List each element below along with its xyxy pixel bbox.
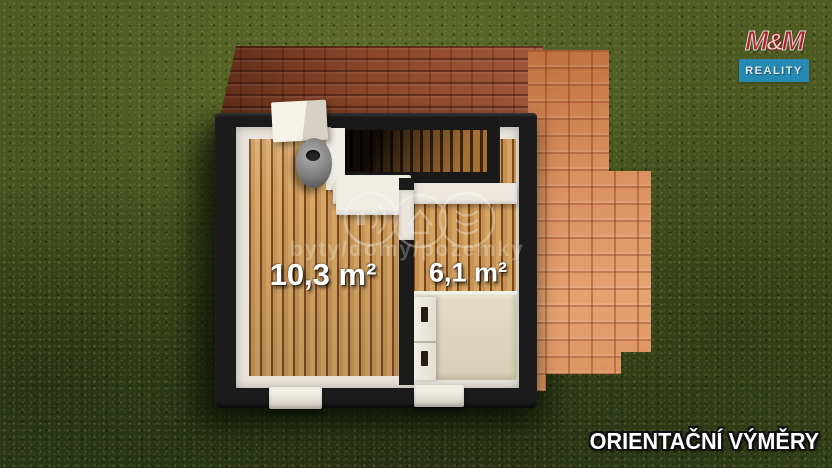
- roof-tiles-upper: [219, 46, 543, 122]
- stove-top-view: [296, 138, 332, 188]
- floorplan-render: 10,3 m² 6,1 m² byty/domy/pozemky M&M REA…: [0, 0, 832, 468]
- agency-logo: M&M REALITY: [739, 26, 809, 82]
- cabinet-handle: [421, 351, 428, 366]
- logo-ampersand: &: [766, 29, 781, 56]
- chimney-vent: [271, 100, 328, 143]
- cabinet-seam: [414, 341, 436, 343]
- caption-orientacni-vymery: ORIENTAČNÍ VÝMĚRY: [590, 428, 819, 455]
- cabinet-handle: [421, 307, 428, 322]
- logo-mm-text: M&M: [739, 26, 809, 58]
- watermark-text: byty/domy/pozemky: [290, 238, 550, 262]
- stove-flue-icon: [306, 150, 320, 161]
- entry-step-right: [414, 385, 464, 407]
- logo-reality-bar: REALITY: [739, 59, 809, 82]
- entry-step-left: [269, 387, 322, 409]
- stairwell-void-interior: [343, 130, 487, 172]
- cabinet: [414, 297, 436, 380]
